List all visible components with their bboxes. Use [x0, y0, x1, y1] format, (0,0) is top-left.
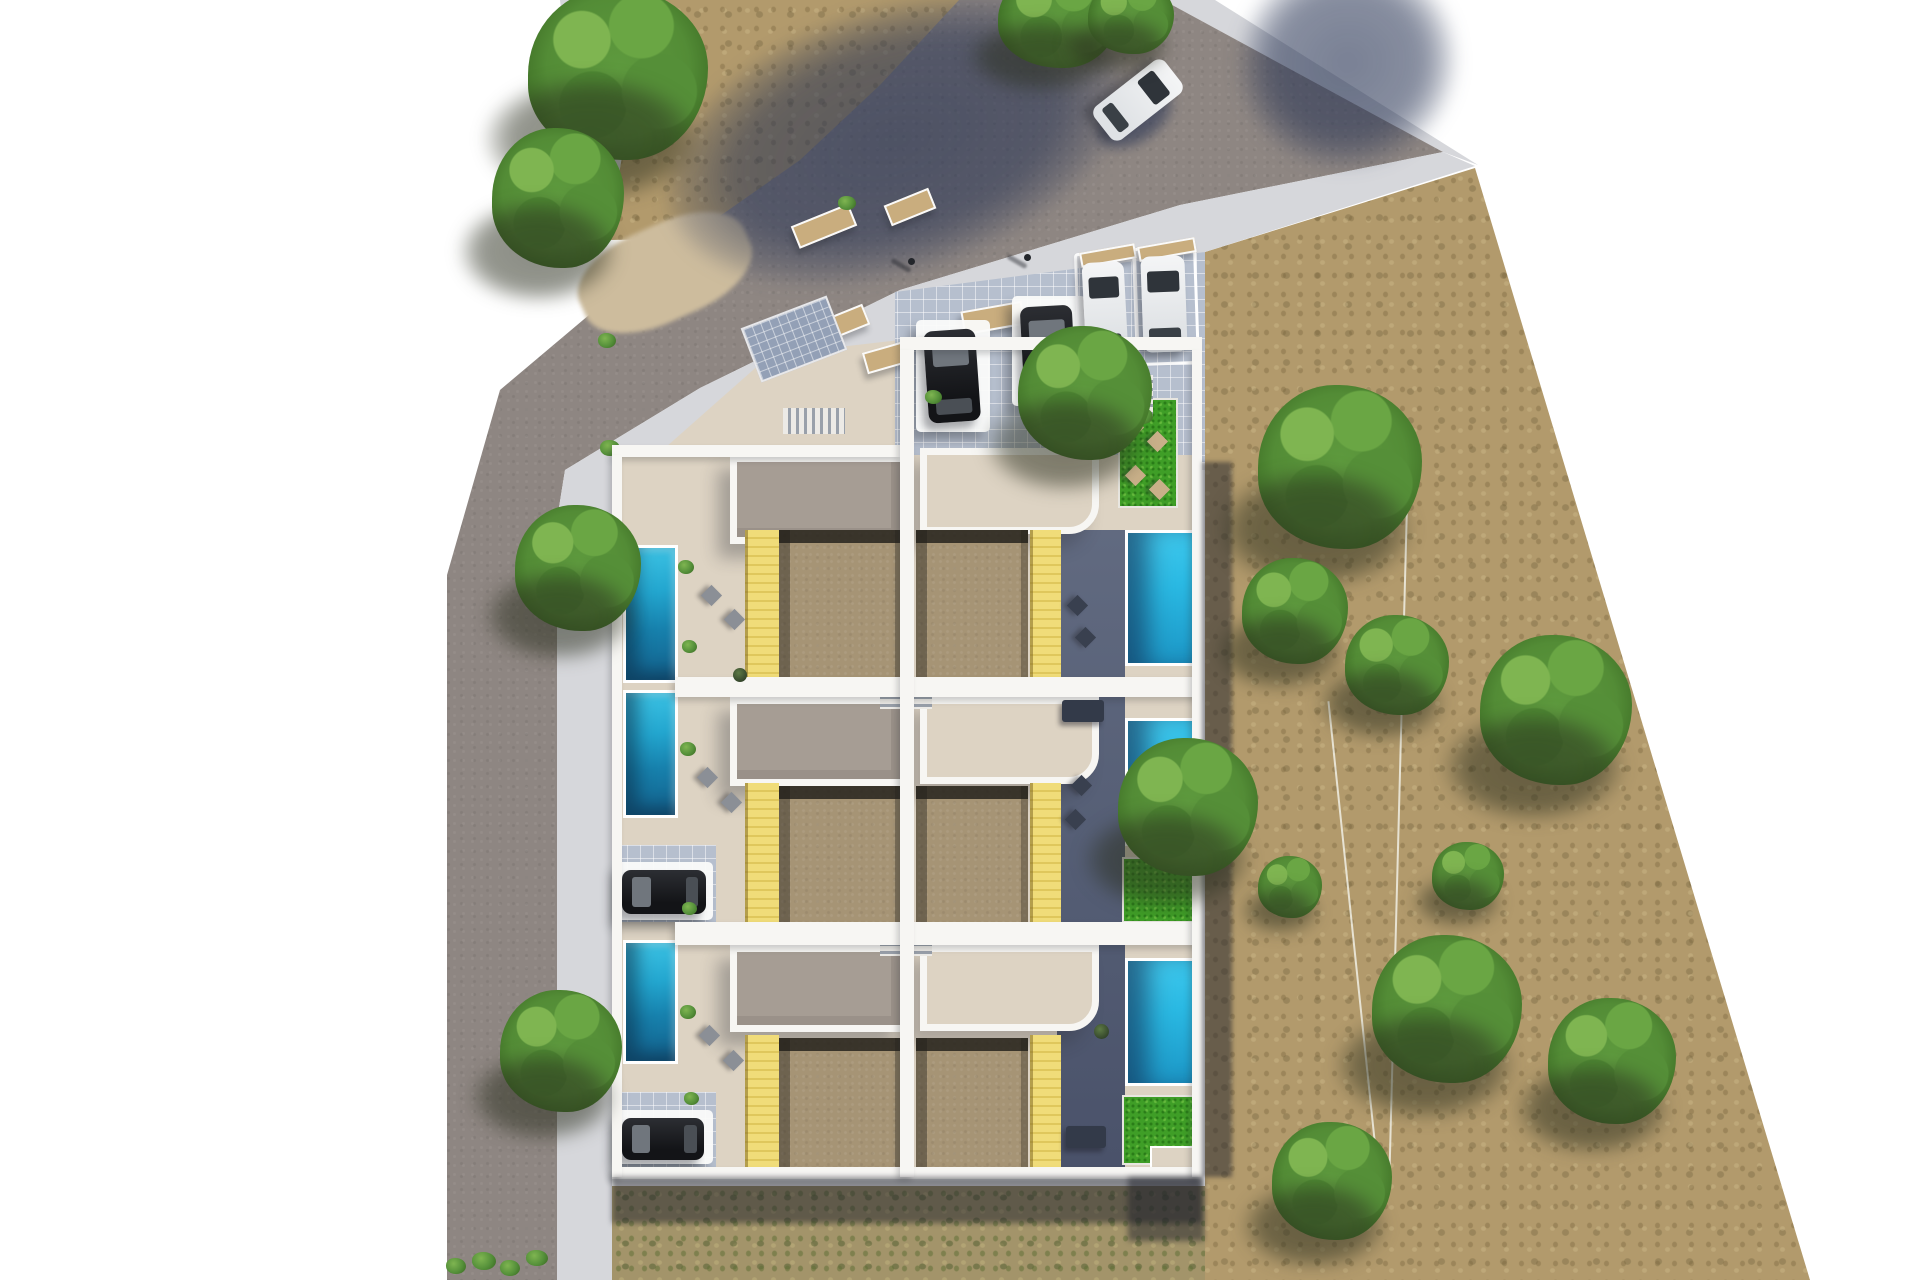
- pool: [623, 690, 678, 818]
- yellow-deck: [1030, 1035, 1061, 1167]
- tree: [1272, 1122, 1392, 1240]
- bush: [680, 1005, 696, 1019]
- pool: [1125, 530, 1198, 666]
- villa-courtyard: [779, 530, 902, 677]
- rear-window: [1101, 101, 1130, 133]
- windshield: [1136, 70, 1170, 106]
- tree: [515, 505, 641, 631]
- building-shadow-south-deep: [1128, 1177, 1204, 1241]
- bush: [682, 902, 697, 915]
- villa-courtyard: [916, 786, 1028, 922]
- roof-slab: [730, 945, 907, 1032]
- garden-sofa: [1066, 1126, 1106, 1148]
- villa-courtyard: [779, 1038, 902, 1167]
- party-wall: [900, 350, 914, 1177]
- tree: [1480, 635, 1632, 785]
- tree: [500, 990, 622, 1112]
- roadside-bush: [526, 1250, 548, 1266]
- dividing-wall: [675, 922, 1202, 945]
- garden-sofa: [1062, 700, 1104, 722]
- roadside-bush: [500, 1260, 520, 1276]
- windshield: [1088, 277, 1119, 300]
- pool: [623, 940, 678, 1064]
- tree: [1372, 935, 1522, 1083]
- villa-courtyard: [916, 530, 1028, 677]
- roadside-bush: [472, 1252, 496, 1270]
- pool: [1125, 958, 1198, 1086]
- dividing-wall: [675, 677, 1202, 697]
- tree: [1242, 558, 1348, 664]
- rear-window: [936, 398, 972, 415]
- tree: [1548, 998, 1676, 1124]
- tree: [1432, 842, 1504, 910]
- windshield: [632, 1125, 650, 1154]
- yellow-deck: [745, 783, 779, 922]
- planter-pot: [733, 668, 747, 682]
- yellow-deck: [745, 1035, 779, 1167]
- planter-pot: [1094, 1024, 1109, 1039]
- villa-courtyard: [779, 786, 902, 922]
- bush: [925, 390, 942, 404]
- dividing-wall: [612, 445, 902, 457]
- dark-car: [622, 1118, 704, 1160]
- bush: [684, 1092, 699, 1105]
- tree: [1345, 615, 1449, 715]
- bush: [838, 196, 856, 210]
- bush: [680, 742, 696, 756]
- aerial-site-plan: Aerial top-down 3D architectural render …: [0, 0, 1920, 1280]
- pedestrian: [1024, 254, 1031, 261]
- tree: [1118, 738, 1258, 876]
- tree: [1088, 0, 1174, 54]
- tree: [1018, 326, 1152, 460]
- terrace-slab: [920, 945, 1099, 1031]
- windshield: [1147, 271, 1179, 293]
- pedestrian: [908, 258, 915, 265]
- tree: [1258, 856, 1322, 918]
- bush: [598, 333, 616, 348]
- steps: [783, 408, 845, 434]
- villa-courtyard: [916, 1038, 1028, 1167]
- roadside-bush: [446, 1258, 466, 1274]
- tree: [1258, 385, 1422, 549]
- bush: [682, 640, 697, 653]
- tree: [492, 128, 624, 268]
- windshield: [632, 877, 650, 907]
- yellow-deck: [745, 530, 779, 677]
- yellow-deck: [1030, 783, 1061, 922]
- bush: [678, 560, 694, 574]
- building-shadow-south: [612, 1177, 1202, 1223]
- roof-slab: [730, 697, 907, 786]
- rear-window: [684, 1125, 696, 1154]
- yellow-deck: [1030, 530, 1061, 677]
